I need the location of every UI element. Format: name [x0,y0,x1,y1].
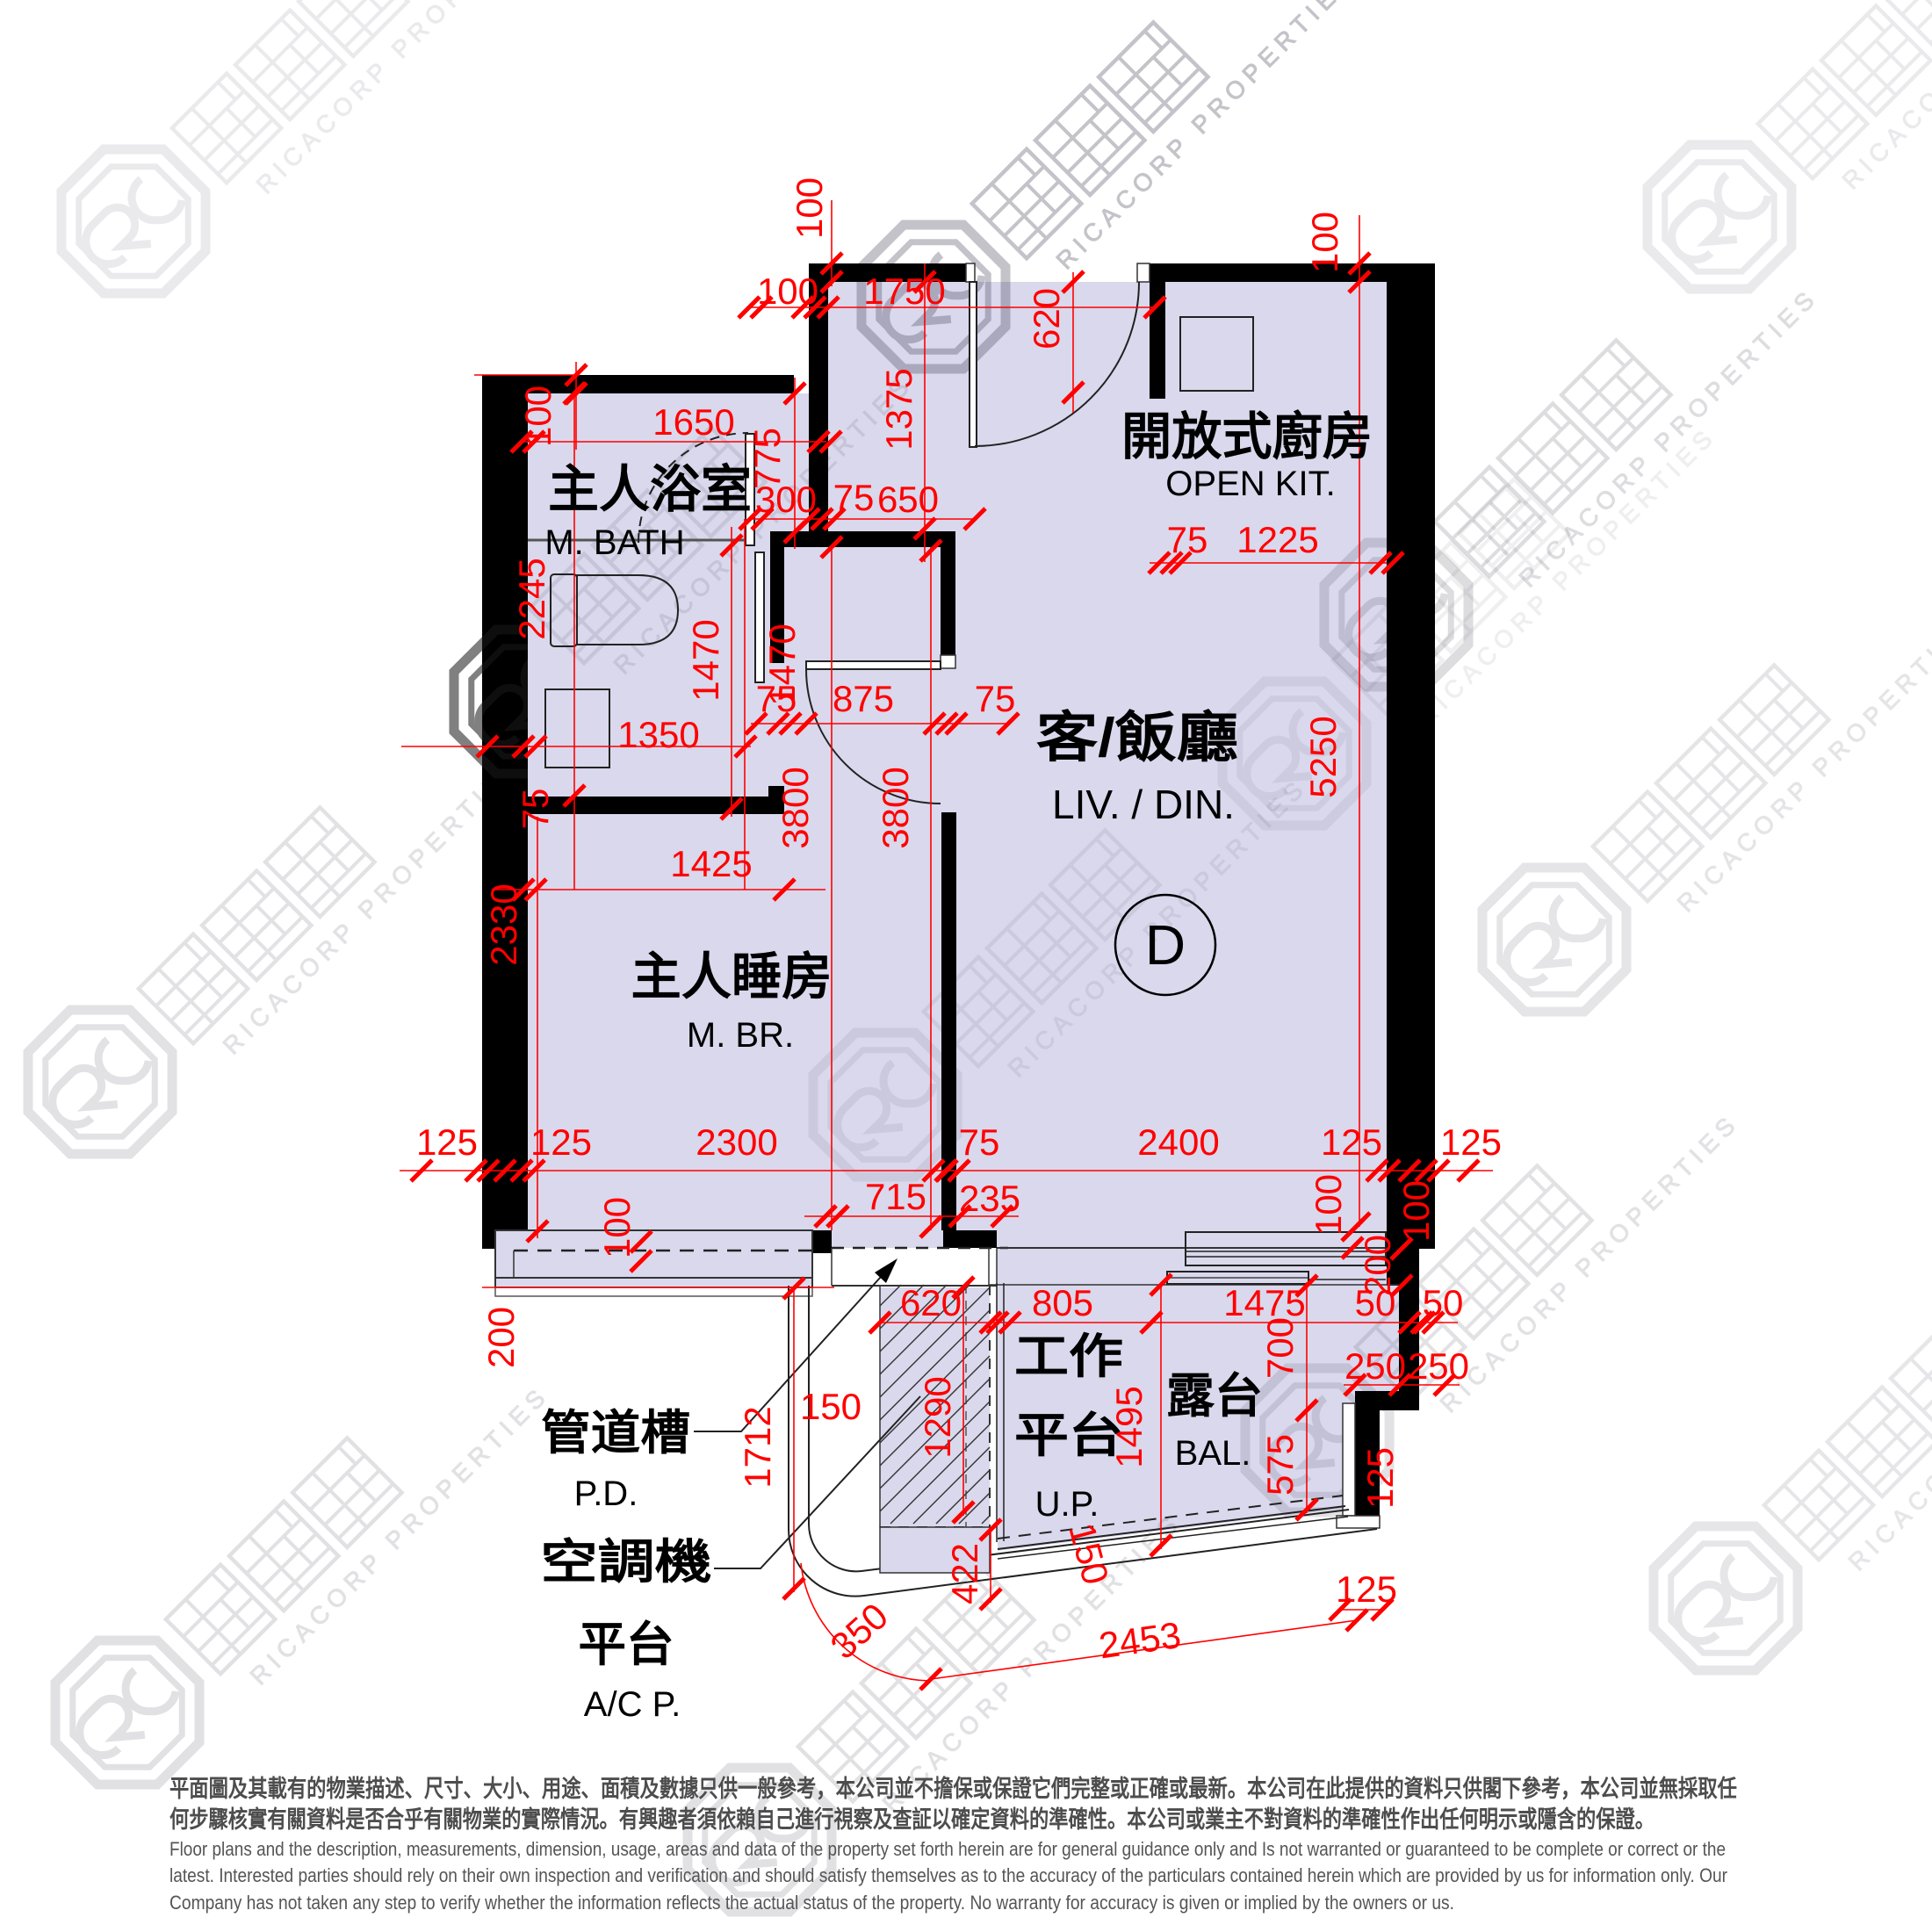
svg-text:805: 805 [1032,1282,1093,1323]
svg-text:200: 200 [480,1307,522,1368]
svg-text:開放式廚房: 開放式廚房 [1121,408,1373,465]
svg-text:2400: 2400 [1137,1121,1219,1163]
svg-text:主人睡房: 主人睡房 [631,948,833,1006]
svg-text:U.P.: U.P. [1035,1485,1099,1524]
svg-text:Floor plans and the descriptio: Floor plans and the description, measure… [169,1838,1726,1860]
svg-text:何步驟核實有關資料是否合乎有關物業的實際情況。有興趣者須依賴: 何步驟核實有關資料是否合乎有關物業的實際情況。有興趣者須依賴自己進行視察及查証以… [169,1806,1654,1833]
svg-text:125: 125 [1336,1568,1397,1610]
svg-text:650: 650 [877,479,939,520]
svg-text:1290: 1290 [917,1376,958,1458]
svg-text:1712: 1712 [737,1406,778,1488]
svg-text:3800: 3800 [875,767,916,848]
svg-text:250: 250 [1408,1345,1469,1387]
svg-text:1225: 1225 [1236,519,1318,560]
svg-text:300: 300 [755,479,817,520]
svg-text:1375: 1375 [878,368,919,450]
svg-text:平台: 平台 [1014,1409,1123,1462]
svg-text:BAL.: BAL. [1175,1434,1251,1473]
svg-text:100: 100 [517,386,559,447]
svg-text:Company has not taken any step: Company has not taken any step to verify… [169,1892,1454,1914]
svg-text:125: 125 [416,1121,478,1163]
svg-text:2245: 2245 [511,558,552,639]
svg-text:1425: 1425 [670,843,752,884]
svg-text:A/C P.: A/C P. [584,1685,681,1724]
svg-text:50: 50 [1423,1282,1464,1323]
svg-text:125: 125 [530,1121,592,1163]
svg-text:875: 875 [833,678,894,719]
svg-text:715: 715 [865,1176,926,1217]
svg-text:2300: 2300 [696,1121,777,1163]
svg-text:75: 75 [515,789,556,830]
svg-text:D: D [1145,913,1186,977]
svg-text:1470: 1470 [685,619,726,701]
svg-text:3800: 3800 [775,767,816,848]
svg-text:125: 125 [1321,1121,1382,1163]
svg-text:100: 100 [1304,212,1345,273]
svg-text:M. BATH: M. BATH [544,523,684,562]
svg-text:M. BR.: M. BR. [687,1016,794,1055]
svg-text:150: 150 [800,1386,861,1427]
svg-text:OPEN KIT.: OPEN KIT. [1165,465,1335,503]
svg-text:250: 250 [1344,1345,1406,1387]
svg-text:100: 100 [1308,1174,1349,1236]
svg-text:露台: 露台 [1166,1370,1263,1423]
svg-text:125: 125 [1359,1447,1401,1509]
svg-text:P.D.: P.D. [574,1474,638,1513]
svg-text:620: 620 [1026,288,1067,350]
svg-text:LIV. / DIN.: LIV. / DIN. [1052,782,1235,827]
svg-text:100: 100 [1395,1180,1437,1242]
svg-text:平面圖及其載有的物業描述、尺寸、大小、用途、面積及數據只供一: 平面圖及其載有的物業描述、尺寸、大小、用途、面積及數據只供一般參考，本公司並不擔… [169,1775,1737,1802]
svg-text:1350: 1350 [617,714,699,755]
svg-text:75: 75 [975,678,1016,719]
svg-text:平台: 平台 [579,1618,674,1671]
svg-text:422: 422 [944,1543,985,1604]
svg-text:75: 75 [1167,519,1208,560]
svg-text:1470: 1470 [761,624,803,705]
svg-text:1650: 1650 [652,401,734,443]
svg-text:1750: 1750 [863,270,945,312]
svg-text:575: 575 [1259,1434,1301,1496]
svg-text:latest. Interested parties sho: latest. Interested parties should rely o… [169,1864,1727,1886]
svg-text:5250: 5250 [1302,716,1344,797]
svg-text:空調機: 空調機 [541,1536,712,1589]
svg-text:2330: 2330 [483,883,524,965]
svg-text:700: 700 [1259,1317,1301,1379]
svg-text:100: 100 [789,177,830,239]
svg-text:主人浴室: 主人浴室 [548,461,752,518]
svg-text:管道槽: 管道槽 [541,1407,690,1460]
svg-text:1475: 1475 [1223,1282,1305,1323]
svg-text:100: 100 [757,270,818,312]
svg-text:75: 75 [959,1121,1000,1163]
svg-text:620: 620 [900,1282,962,1323]
svg-text:工作: 工作 [1014,1330,1123,1383]
svg-text:客/飯廳: 客/飯廳 [1036,708,1238,768]
svg-text:125: 125 [1440,1121,1502,1163]
svg-text:100: 100 [596,1197,638,1258]
svg-text:50: 50 [1355,1282,1396,1323]
svg-text:75: 75 [833,477,875,518]
svg-text:235: 235 [959,1178,1020,1219]
